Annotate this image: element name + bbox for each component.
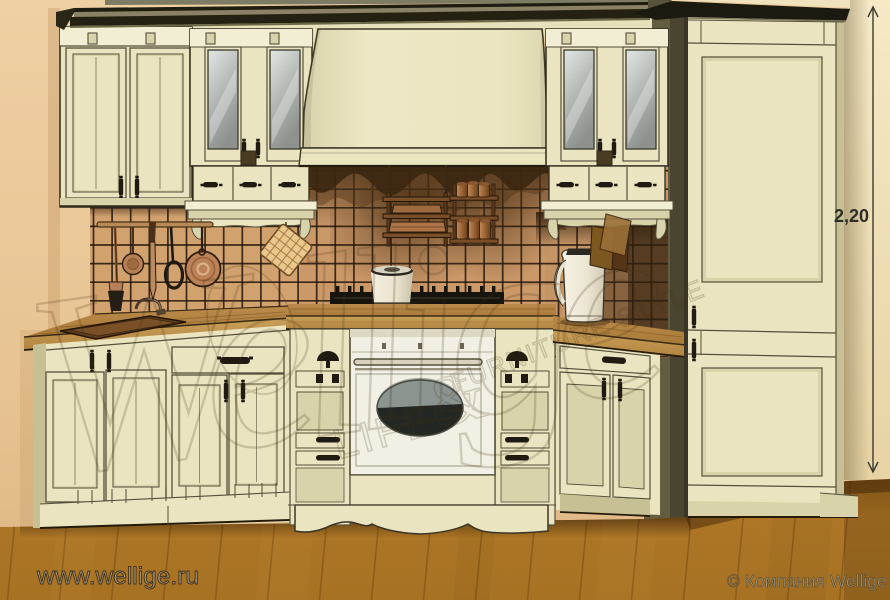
svg-text:2,20: 2,20 bbox=[834, 206, 869, 226]
svg-text:© Компания Wellige: © Компания Wellige bbox=[727, 571, 887, 591]
svg-text:www.wellige.ru: www.wellige.ru bbox=[36, 563, 199, 590]
